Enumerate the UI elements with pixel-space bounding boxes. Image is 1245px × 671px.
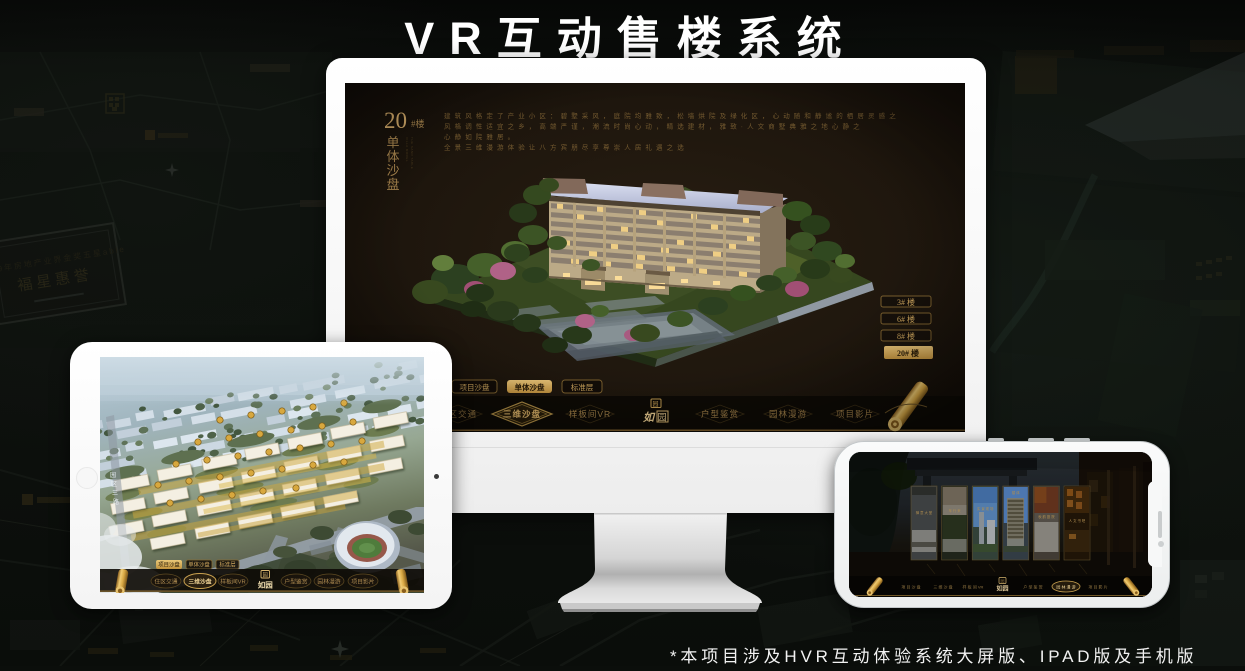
svg-text:路: 路	[113, 498, 119, 506]
svg-text:三维沙盘: 三维沙盘	[188, 577, 211, 585]
svg-text:三 维 沙 盘: 三 维 沙 盘	[933, 584, 952, 590]
svg-text:园林漫游: 园林漫游	[317, 577, 340, 585]
svg-text:住区交通: 住区交通	[154, 577, 177, 585]
svg-text:园 林 漫 游: 园 林 漫 游	[1056, 584, 1075, 590]
svg-text:区: 区	[111, 481, 117, 488]
svg-text:项 目 影 片: 项 目 影 片	[1088, 584, 1107, 590]
svg-text:户 型 鉴 赏: 户 型 鉴 赏	[1023, 584, 1042, 590]
svg-text:标准层: 标准层	[219, 561, 236, 569]
svg-text:园: 园	[110, 472, 116, 479]
svg-text:户型鉴赏: 户型鉴赏	[284, 577, 307, 585]
svg-text:样板间VR: 样板间VR	[220, 577, 245, 585]
svg-text:三: 三	[112, 490, 118, 497]
svg-text:单体沙盘: 单体沙盘	[188, 561, 210, 569]
svg-text:样 板 间 VR: 样 板 间 VR	[963, 584, 984, 590]
svg-text:项目影片: 项目影片	[351, 577, 374, 585]
svg-text:如园: 如园	[996, 585, 1008, 593]
svg-text:项 目 沙 盘: 项 目 沙 盘	[901, 584, 920, 590]
svg-text:如园: 如园	[258, 580, 273, 590]
svg-text:园: 园	[263, 573, 268, 579]
svg-text:园: 园	[1001, 577, 1005, 583]
svg-text:项目沙盘: 项目沙盘	[158, 561, 180, 569]
